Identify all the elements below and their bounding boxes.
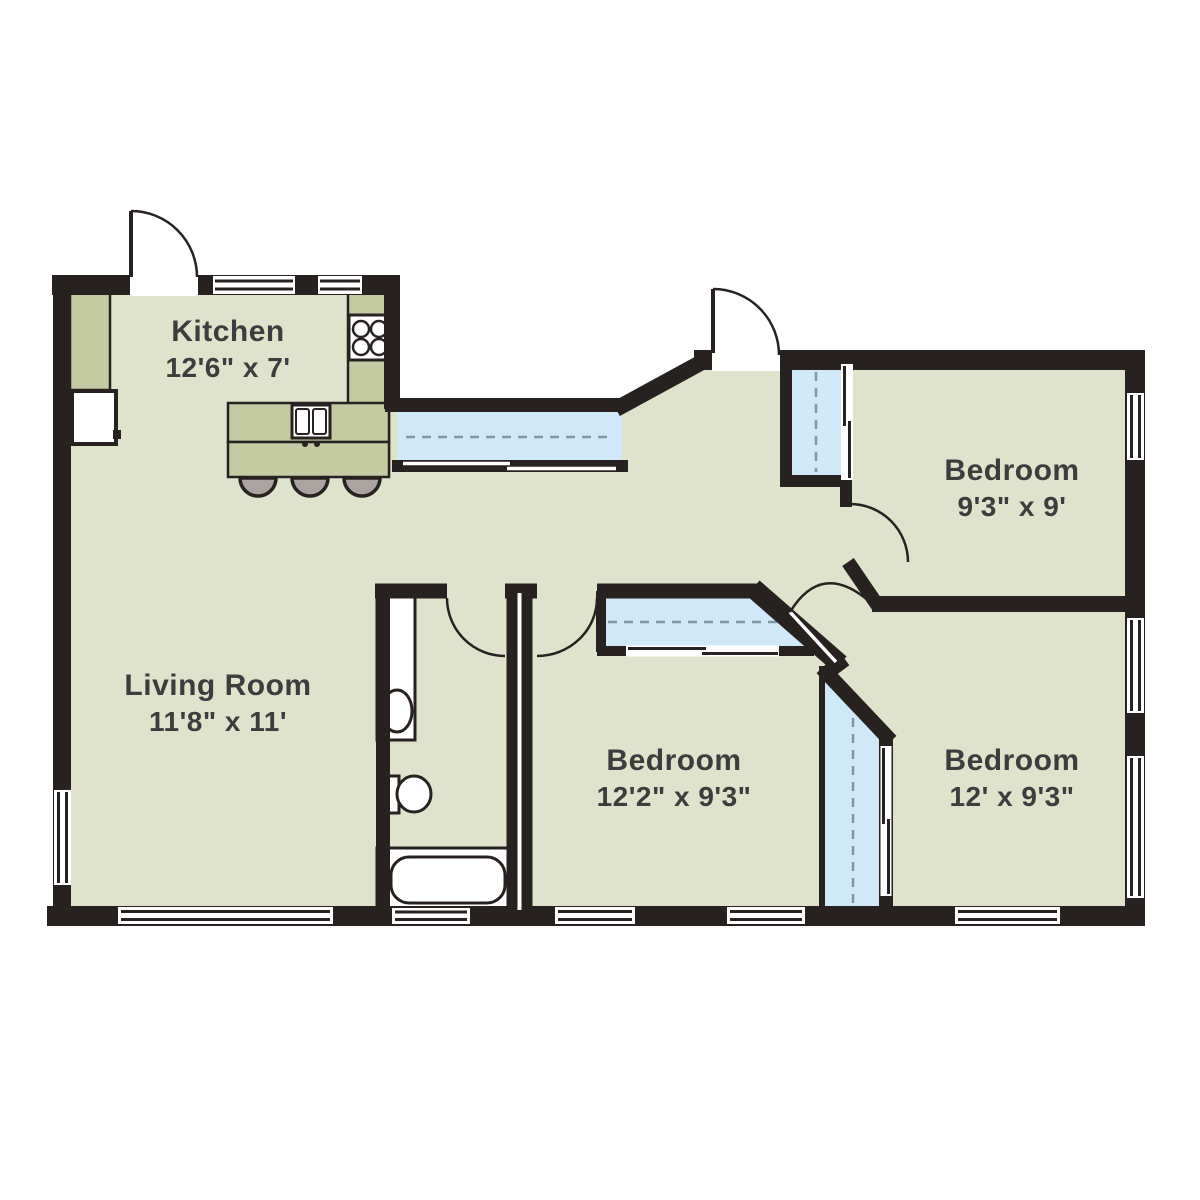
kitchen-label: Kitchen bbox=[171, 315, 285, 348]
living-room-dims: 11'8" x 11' bbox=[149, 706, 287, 737]
island-lower bbox=[228, 442, 389, 477]
floor-plan-drawing: Kitchen 12'6" x 7' Living Room 11'8" x 1… bbox=[0, 0, 1200, 1200]
bedroom3-label: Bedroom bbox=[944, 744, 1079, 777]
kitchen-window-2 bbox=[318, 276, 362, 294]
counter-left bbox=[70, 287, 110, 390]
bedroom1-label: Bedroom bbox=[944, 454, 1079, 487]
kitchen-dims: 12'6" x 7' bbox=[165, 352, 290, 383]
kitchen-door bbox=[130, 211, 198, 296]
bar-stools bbox=[240, 478, 380, 496]
bathtub-icon bbox=[377, 848, 517, 910]
stove-icon bbox=[349, 315, 389, 360]
living-window-left bbox=[54, 790, 71, 885]
refrigerator-icon bbox=[72, 391, 121, 444]
hall-closet bbox=[397, 405, 622, 466]
bedroom3-window-right-1 bbox=[1127, 618, 1144, 713]
living-room-label: Living Room bbox=[124, 669, 311, 702]
bedroom1-dims: 9'3" x 9' bbox=[958, 491, 1067, 522]
living-window-bottom bbox=[118, 907, 333, 924]
bathroom-window bbox=[392, 908, 470, 924]
kitchen-window-1 bbox=[213, 276, 295, 294]
bedroom2-label: Bedroom bbox=[606, 744, 741, 777]
bedroom2-window-2 bbox=[727, 907, 805, 924]
bedroom1-window bbox=[1127, 393, 1144, 460]
floor-plan-page: Kitchen 12'6" x 7' Living Room 11'8" x 1… bbox=[0, 0, 1200, 1200]
bedroom3-window-right-2 bbox=[1127, 756, 1144, 898]
entry-door bbox=[712, 289, 780, 371]
bedroom3-dims: 12' x 9'3" bbox=[949, 781, 1074, 812]
bedroom2-dims: 12'2" x 9'3" bbox=[597, 781, 752, 812]
bedroom2-window-1 bbox=[555, 907, 635, 924]
bedroom3-window-bottom bbox=[955, 907, 1060, 924]
